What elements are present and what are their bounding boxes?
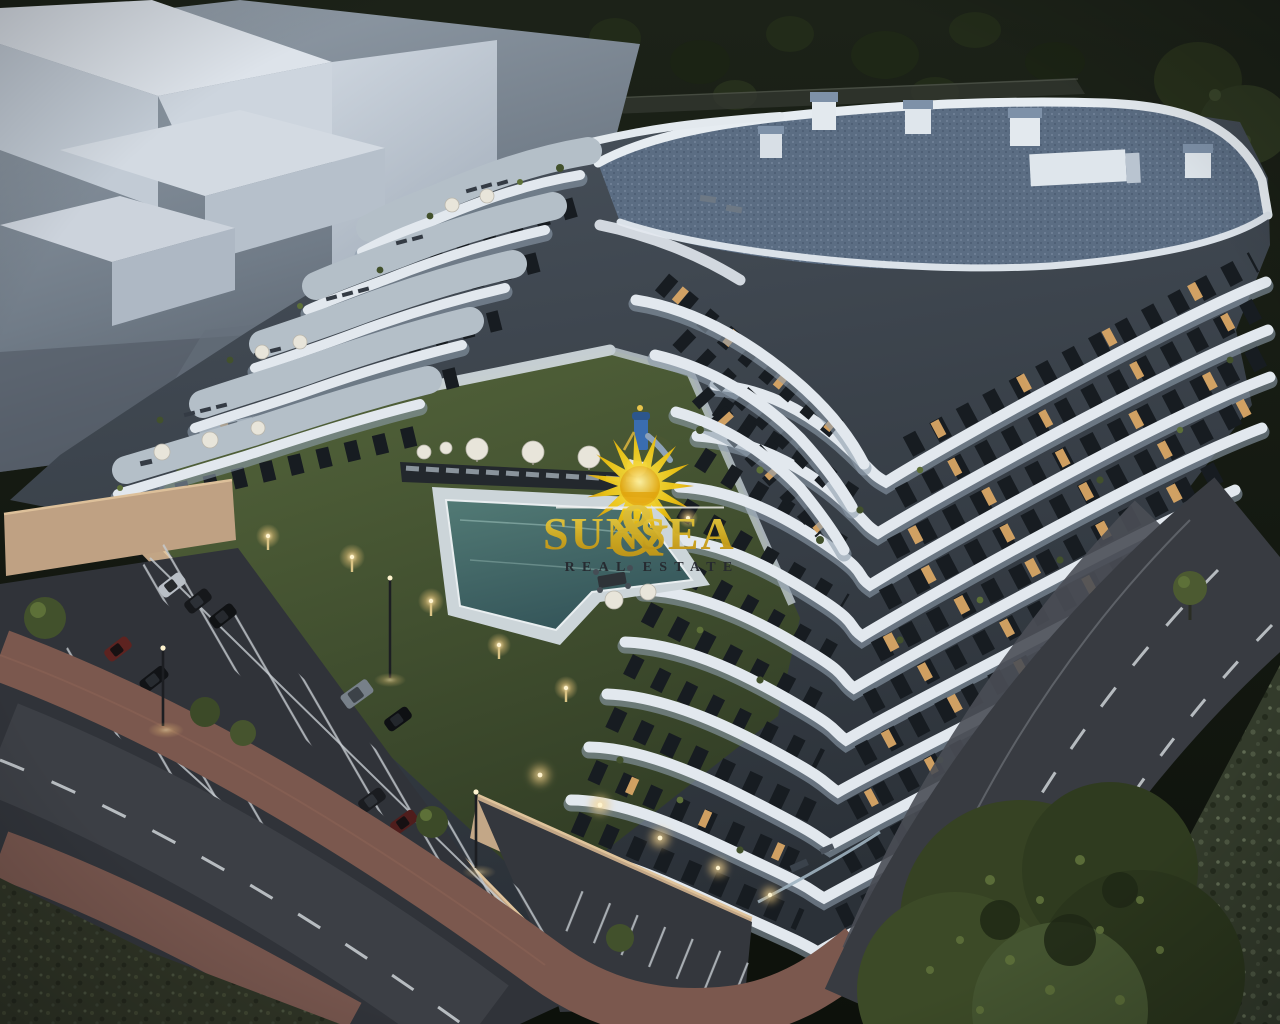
architectural-render: SUN & SEA REAL ESTATE [0, 0, 1280, 1024]
logo-subtitle: REAL ESTATE [565, 560, 740, 575]
logo-word-sea: SEA [640, 508, 735, 559]
